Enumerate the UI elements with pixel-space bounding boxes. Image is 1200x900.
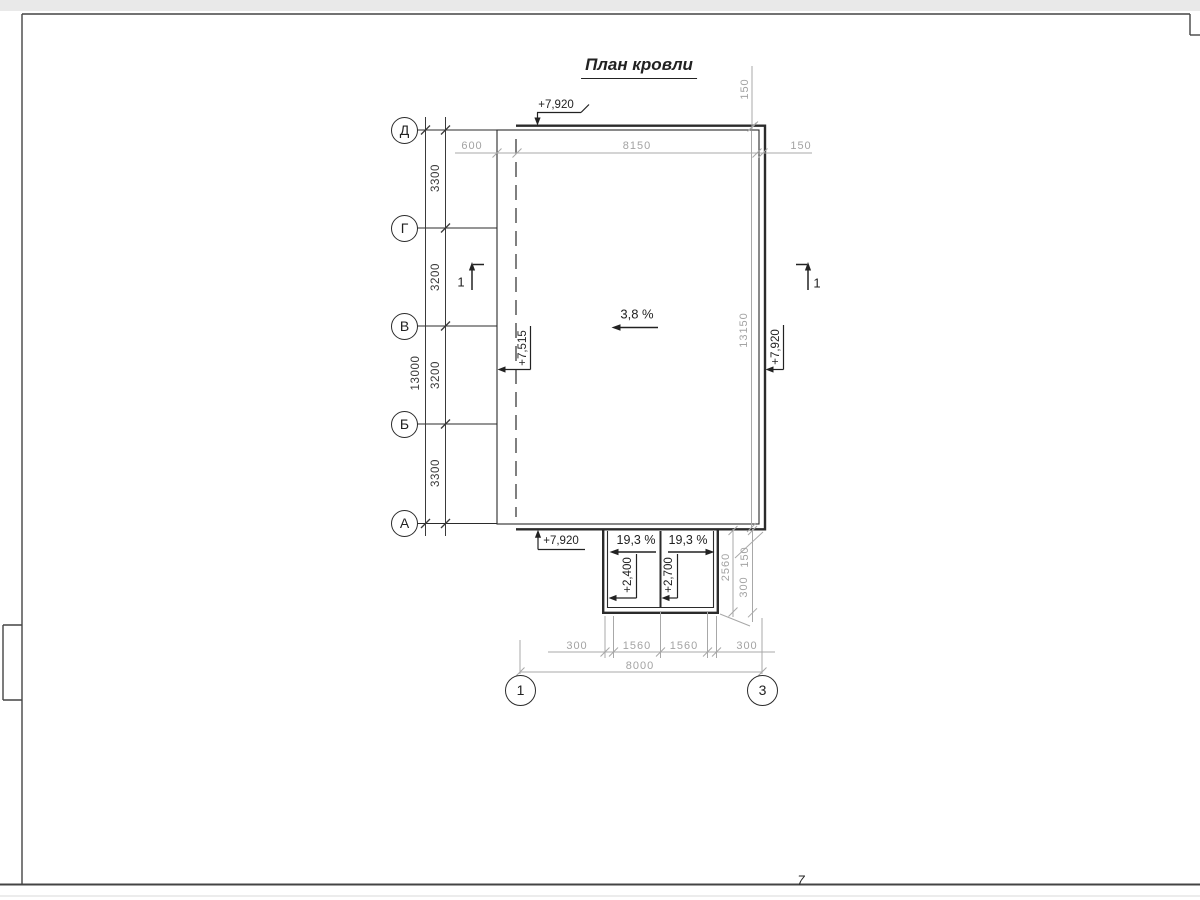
elevation-canopy-left: +2,400 bbox=[622, 557, 634, 593]
dim-left-3300-bottom: 3300 bbox=[430, 459, 442, 487]
elevation-canopy-right: +2,700 bbox=[663, 557, 675, 593]
section-mark-1-right: 1 bbox=[813, 276, 820, 291]
dim-canopy-300: 300 bbox=[738, 576, 750, 597]
dim-canopy-2560: 2560 bbox=[720, 553, 732, 581]
axis-label-1: 1 bbox=[517, 682, 525, 698]
slope-canopy-left: 19,3 % bbox=[617, 533, 656, 547]
axis-label-v: В bbox=[400, 318, 409, 334]
dim-left-13000: 13000 bbox=[410, 356, 422, 391]
dim-left-3200-lower: 3200 bbox=[430, 361, 442, 389]
axis-circle-b: Б bbox=[391, 411, 418, 438]
axis-label-b: Б bbox=[400, 416, 409, 432]
axis-circle-d: Д bbox=[391, 117, 418, 144]
axis-circle-g: Г bbox=[391, 215, 418, 242]
drawing-linework bbox=[0, 0, 1200, 900]
drawing-sheet: План кровли Д Г В Б А 1 3 3300 3200 3200… bbox=[0, 0, 1200, 900]
axis-label-3: 3 bbox=[759, 682, 767, 698]
dim-bottom-300-left: 300 bbox=[566, 640, 587, 652]
axis-label-d: Д bbox=[400, 122, 409, 138]
elevation-leaders bbox=[498, 105, 784, 602]
axis-label-a: А bbox=[400, 515, 409, 531]
dim-bottom-1560-left: 1560 bbox=[623, 640, 651, 652]
dim-topright-150: 150 bbox=[739, 78, 751, 99]
slope-main: 3,8 % bbox=[620, 307, 653, 322]
slope-canopy-right: 19,3 % bbox=[669, 533, 708, 547]
axis-label-g: Г bbox=[401, 220, 409, 236]
dim-left-3200-upper: 3200 bbox=[430, 263, 442, 291]
axis-circle-1: 1 bbox=[505, 675, 536, 706]
dim-bottom-300-right: 300 bbox=[736, 640, 757, 652]
section-mark-1-left: 1 bbox=[457, 275, 464, 290]
page-number: 7 bbox=[797, 873, 804, 888]
dim-top-150: 150 bbox=[790, 140, 811, 152]
dim-left-3300-top: 3300 bbox=[430, 164, 442, 192]
drawing-title: План кровли bbox=[581, 55, 697, 79]
dim-right-13150: 13150 bbox=[738, 312, 750, 348]
dim-top-8150: 8150 bbox=[623, 140, 651, 152]
elevation-roof-top: +7,920 bbox=[538, 99, 574, 111]
dim-canopy-150: 150 bbox=[739, 546, 751, 567]
section-mark-arrows bbox=[469, 262, 811, 290]
dim-bottom-8000: 8000 bbox=[626, 660, 654, 672]
dim-top-600: 600 bbox=[461, 140, 482, 152]
axis-circle-v: В bbox=[391, 313, 418, 340]
axis-circle-a: А bbox=[391, 510, 418, 537]
slope-arrows bbox=[610, 324, 715, 555]
grid-lines bbox=[417, 130, 497, 524]
elevation-roof-bottom: +7,920 bbox=[543, 535, 579, 547]
dim-bottom-1560-right: 1560 bbox=[670, 640, 698, 652]
elevation-roof-right: +7,920 bbox=[770, 329, 782, 365]
sheet-frame bbox=[0, 14, 1200, 896]
axis-circle-3: 3 bbox=[747, 675, 778, 706]
elevation-roof-left: +7,515 bbox=[517, 330, 529, 366]
